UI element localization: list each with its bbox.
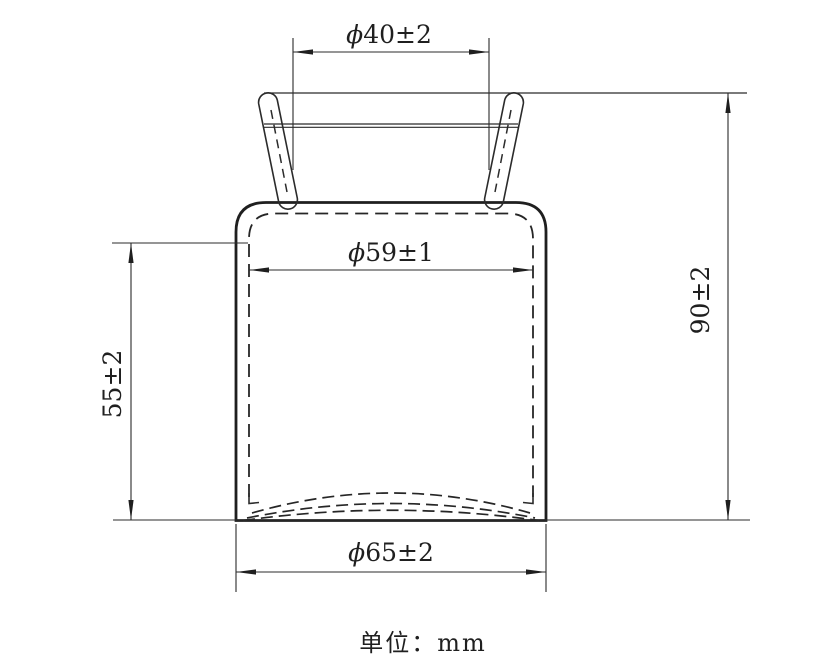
dimension-label-bottom: ϕ65±2 — [348, 538, 434, 567]
arrowhead-bottom — [725, 500, 730, 520]
dimension-inner-diameter: ϕ59±1 — [249, 238, 533, 273]
dimension-body-height: 55±2 — [98, 243, 248, 520]
unit-label: 单位：mm — [359, 629, 487, 657]
inner-wall-bottom-hook-right — [523, 493, 533, 504]
arrowhead-left — [249, 267, 269, 272]
neck-rim-group — [259, 93, 747, 209]
dimension-overall-height: 90±2 — [113, 93, 750, 520]
phi-symbol: ϕ — [346, 20, 363, 49]
arrowhead-right — [513, 267, 533, 272]
dimension-label-body-height: 55±2 — [98, 350, 127, 419]
dimension-label-mouth: ϕ40±2 — [346, 20, 432, 49]
arrowhead-right — [469, 49, 489, 54]
phi-symbol: ϕ — [348, 538, 365, 567]
dimension-mouth-diameter: ϕ40±2 — [293, 20, 489, 170]
dimension-label-overall-height: 90±2 — [686, 266, 715, 335]
arrowhead-left — [236, 569, 256, 574]
dimension-label-inner: ϕ59±1 — [348, 238, 434, 267]
dimension-bottom-diameter: ϕ65±2 — [236, 524, 546, 592]
bottle-drawing: ϕ40±2 ϕ59±1 ϕ65±2 55±2 — [0, 0, 829, 668]
arrowhead-left — [293, 49, 313, 54]
arrowhead-right — [526, 569, 546, 574]
arrowhead-bottom — [128, 500, 133, 520]
neck-right-rolled-edge — [485, 93, 524, 209]
arrowhead-top — [725, 93, 730, 113]
technical-drawing-canvas: ϕ40±2 ϕ59±1 ϕ65±2 55±2 — [0, 0, 829, 668]
arrowhead-top — [128, 243, 133, 263]
neck-left-rolled-edge — [259, 93, 298, 209]
phi-symbol: ϕ — [348, 238, 365, 267]
inner-wall-bottom-hook-left — [249, 493, 259, 504]
